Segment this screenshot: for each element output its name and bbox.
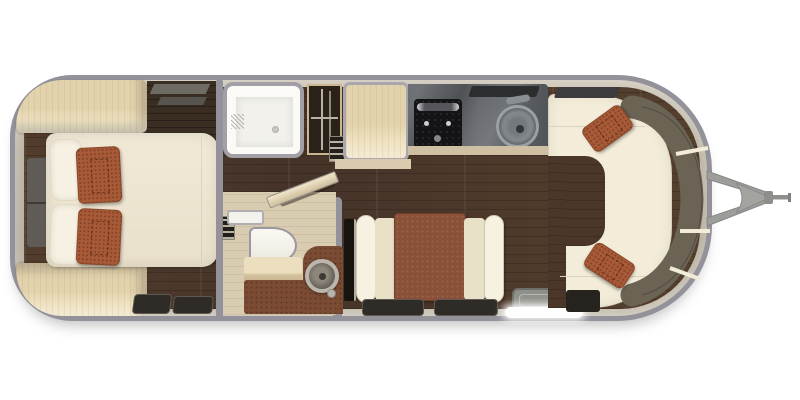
- bedroom-bathroom-wall: [216, 79, 223, 318]
- lounge-floor: [548, 156, 566, 308]
- bathroom-shelf: [227, 210, 264, 225]
- dinette-bench-seat: [375, 218, 396, 300]
- media-panel: [344, 219, 356, 301]
- dinette-table: [394, 213, 466, 301]
- counter-trim: [408, 146, 548, 155]
- dinette-floor-mat: [362, 299, 424, 316]
- cooktop: [414, 99, 462, 149]
- window-reflection: [157, 97, 207, 105]
- floor-plan-scene: [0, 0, 800, 400]
- burner: [434, 135, 441, 142]
- faucet-icon: [327, 289, 336, 298]
- dinette-floor-mat: [434, 299, 498, 316]
- shower-pan: [236, 97, 293, 147]
- tow-hitch: [705, 163, 800, 235]
- cooktop-knob: [446, 121, 451, 126]
- bedroom-wardrobe-bottom: [16, 263, 147, 316]
- bedroom-wardrobe-top: [16, 80, 147, 133]
- bed-headboard: [27, 158, 48, 247]
- hanger-bar: [311, 117, 337, 119]
- closet-rod: [321, 89, 323, 151]
- dinette-bench-seat: [464, 218, 485, 300]
- cooktop-knob: [424, 121, 429, 126]
- bedroom-floor-mat: [172, 296, 214, 314]
- shower-head-icon: [231, 114, 244, 129]
- cooktop-handle: [417, 103, 459, 111]
- dinette-bench-back: [356, 215, 376, 303]
- vessel-sink: [305, 259, 339, 293]
- counter-trim: [335, 159, 411, 169]
- accent-pillow: [76, 208, 123, 266]
- lounge-floor-mat: [566, 290, 600, 312]
- bedroom-floor-mat: [132, 294, 173, 314]
- accent-pillow: [76, 146, 123, 204]
- kitchen-sink: [496, 105, 539, 148]
- pantry-counter: [343, 82, 409, 161]
- window-reflection: [150, 84, 211, 94]
- shower-stall: [223, 82, 304, 158]
- shower-drain: [272, 126, 279, 133]
- dinette-bench-back: [484, 215, 504, 303]
- hitch-coupler: [764, 191, 773, 204]
